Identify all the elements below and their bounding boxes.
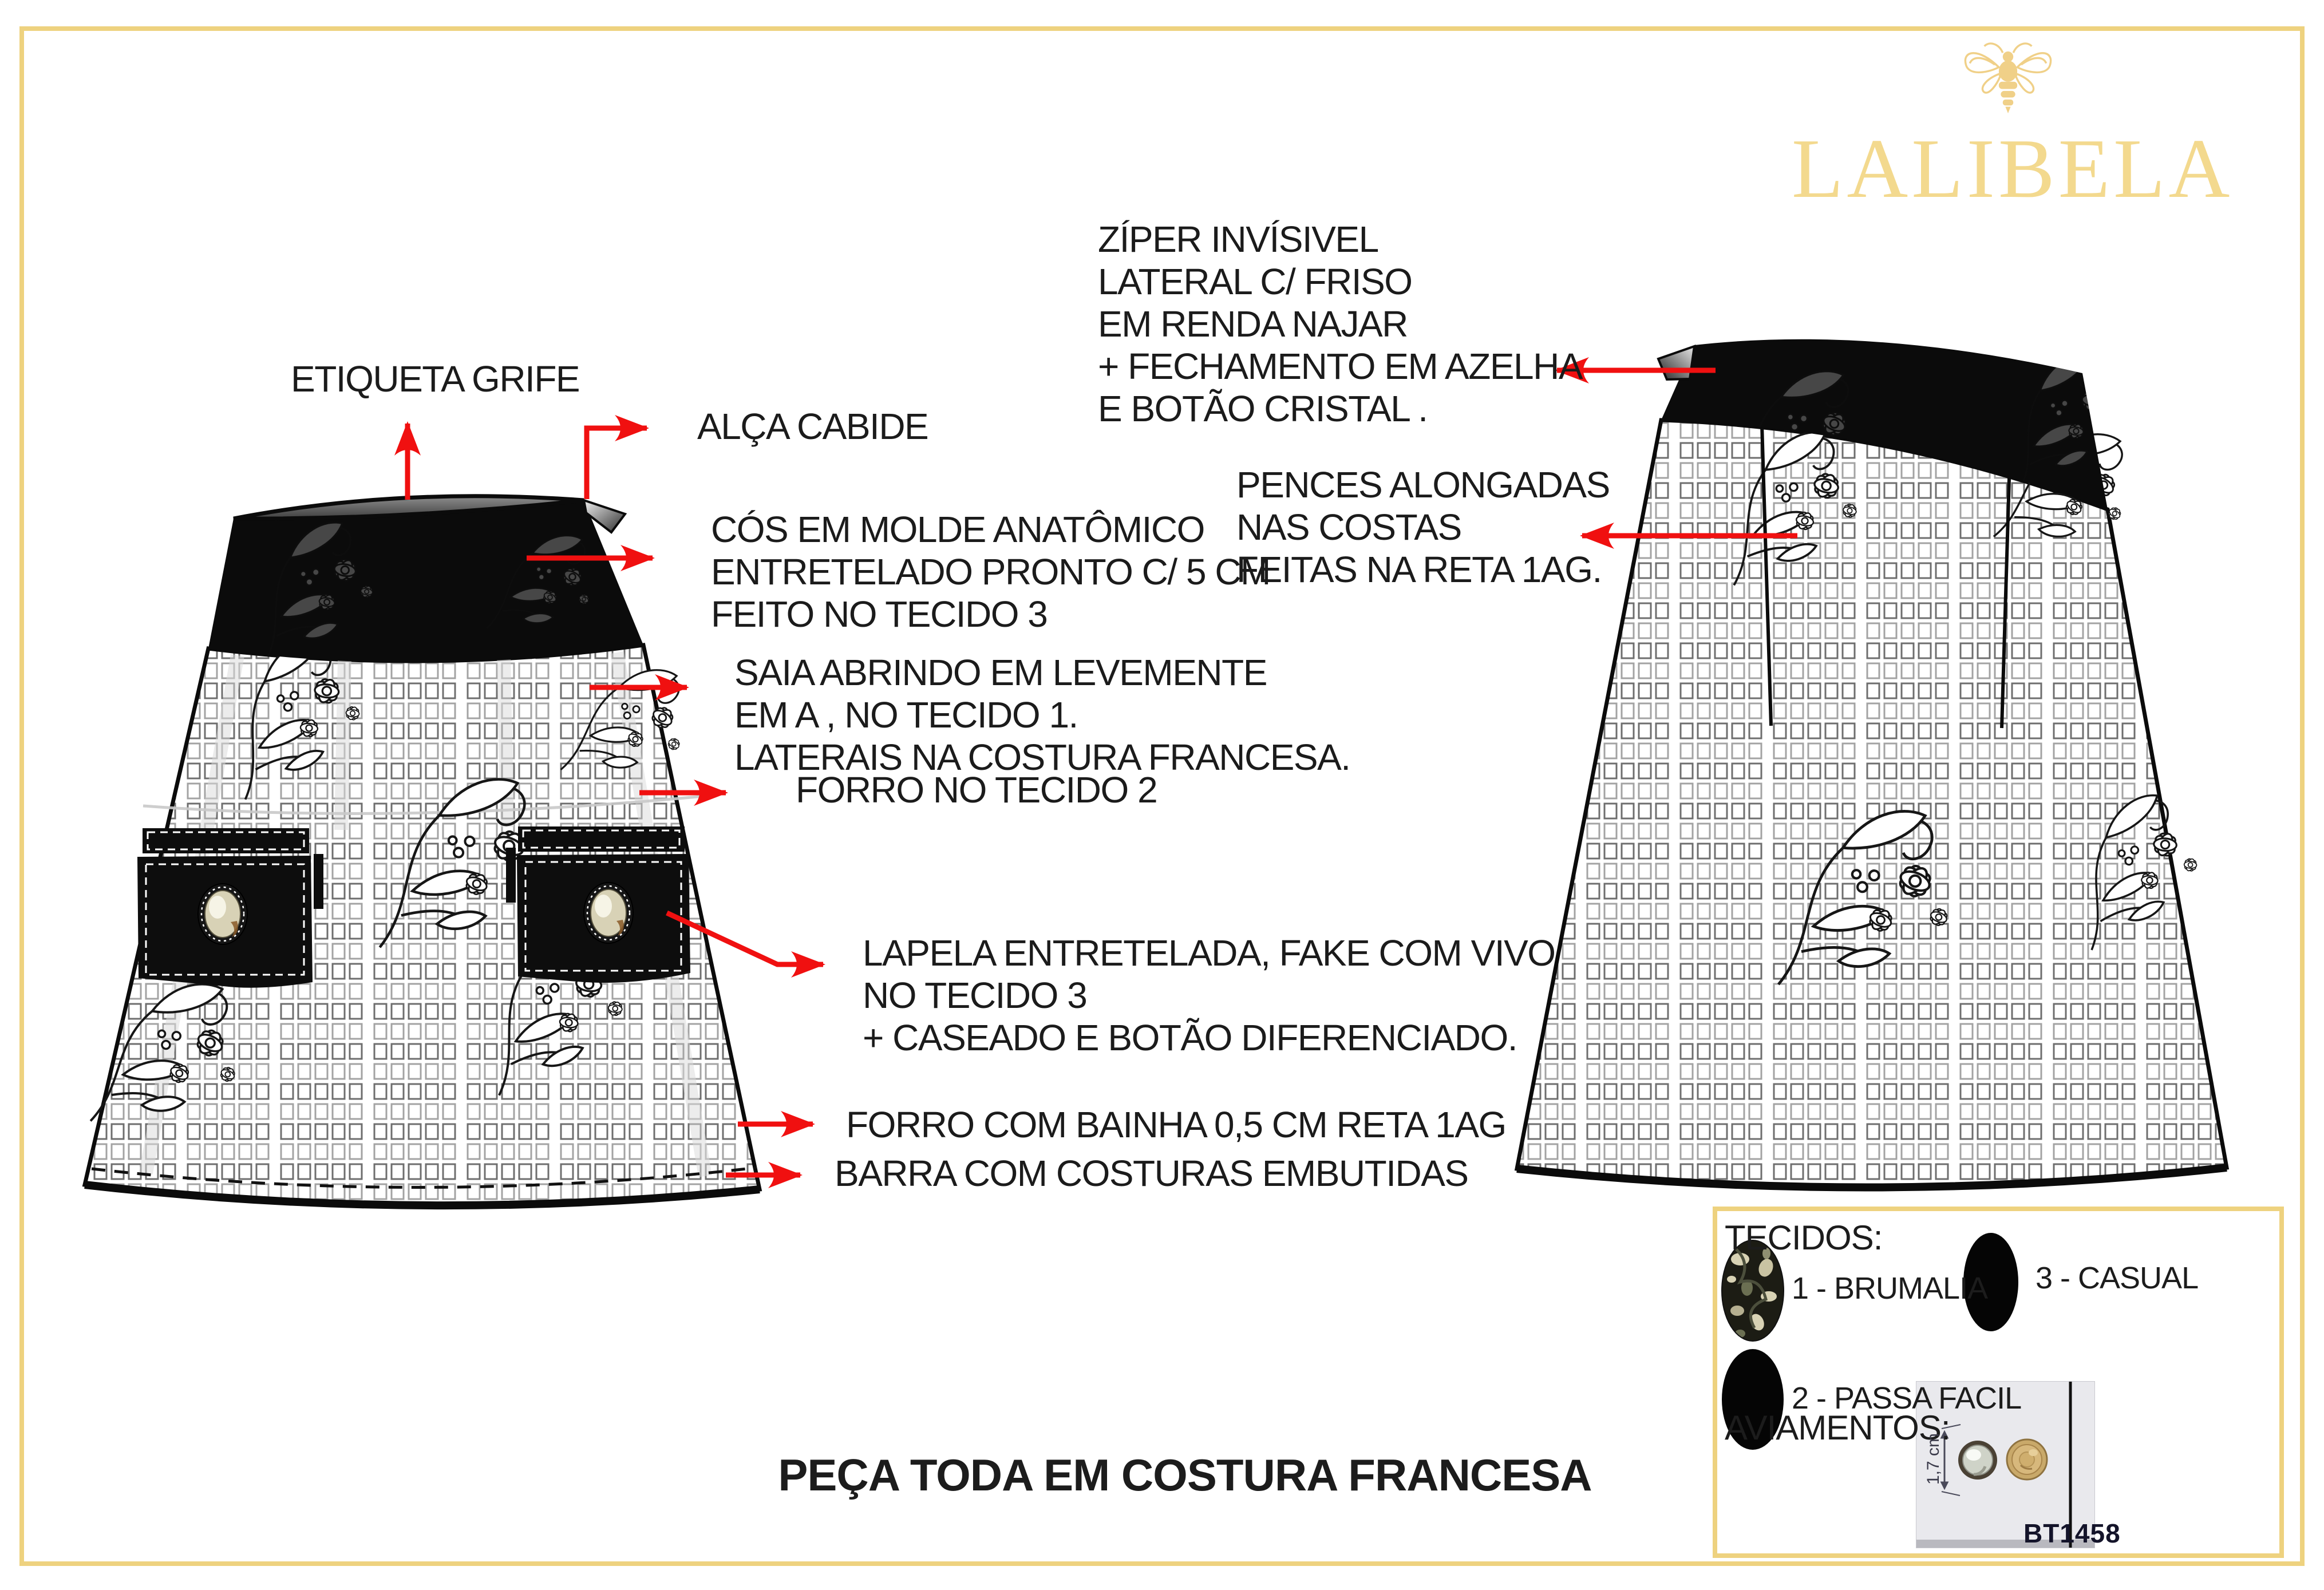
alca-arrow: [587, 428, 647, 499]
barra-label: BARRA COM COSTURAS EMBUTIDAS: [835, 1152, 1468, 1195]
cos-label: CÓS EM MOLDE ANATÔMICO ENTRETELADO PRONT…: [711, 508, 1270, 635]
etiqueta-label: ETIQUETA GRIFE: [291, 358, 579, 400]
tecidos-title: TECIDOS:: [1725, 1218, 1882, 1257]
pences-label: PENCES ALONGADAS NAS COSTAS FEITAS NA RE…: [1236, 464, 1610, 591]
front-skirt: [85, 496, 760, 1205]
button-code: BT1458: [2023, 1518, 2121, 1549]
right-pocket-button: [584, 883, 633, 943]
lapela-label: LAPELA ENTRETELADA, FAKE COM VIVO NO TEC…: [863, 932, 1555, 1059]
back-skirt: [1517, 339, 2227, 1188]
right-pocket-tab: [506, 848, 516, 903]
zipper-flap: [1658, 346, 1694, 379]
pearl-button-photo: [1958, 1441, 1997, 1480]
saia-label: SAIA ABRINDO EM LEVEMENTE EM A , NO TECI…: [734, 651, 1350, 778]
aviamentos-title: AVIAMENTOS:: [1725, 1408, 1950, 1447]
left-pocket-tab: [314, 854, 323, 909]
forro-bainha-label: FORRO COM BAINHA 0,5 CM RETA 1AG: [846, 1103, 1506, 1146]
left-pocket-button: [198, 884, 247, 944]
footer-note: PEÇA TODA EM COSTURA FRANCESA: [756, 1449, 1614, 1501]
legend-item-brumalia: 1 - BRUMALIA: [1792, 1271, 1987, 1306]
legend-item-casual: 3 - CASUAL: [2036, 1260, 2198, 1296]
ziper-label: ZÍPER INVÍSIVEL LATERAL C/ FRISO EM REND…: [1098, 218, 1582, 430]
gold-button-photo: [2007, 1439, 2047, 1480]
alca-label: ALÇA CABIDE: [697, 405, 928, 448]
forro-label: FORRO NO TECIDO 2: [796, 769, 1157, 811]
techpack-page: LALIBELA ETIQUETA GRIFE ALÇA CABIDE CÓS …: [0, 0, 2324, 1590]
bee-icon: [1965, 43, 2050, 113]
button-size-label: 1,7 cm: [1924, 1425, 1943, 1493]
brand-logo: LALIBELA: [1792, 120, 2215, 217]
